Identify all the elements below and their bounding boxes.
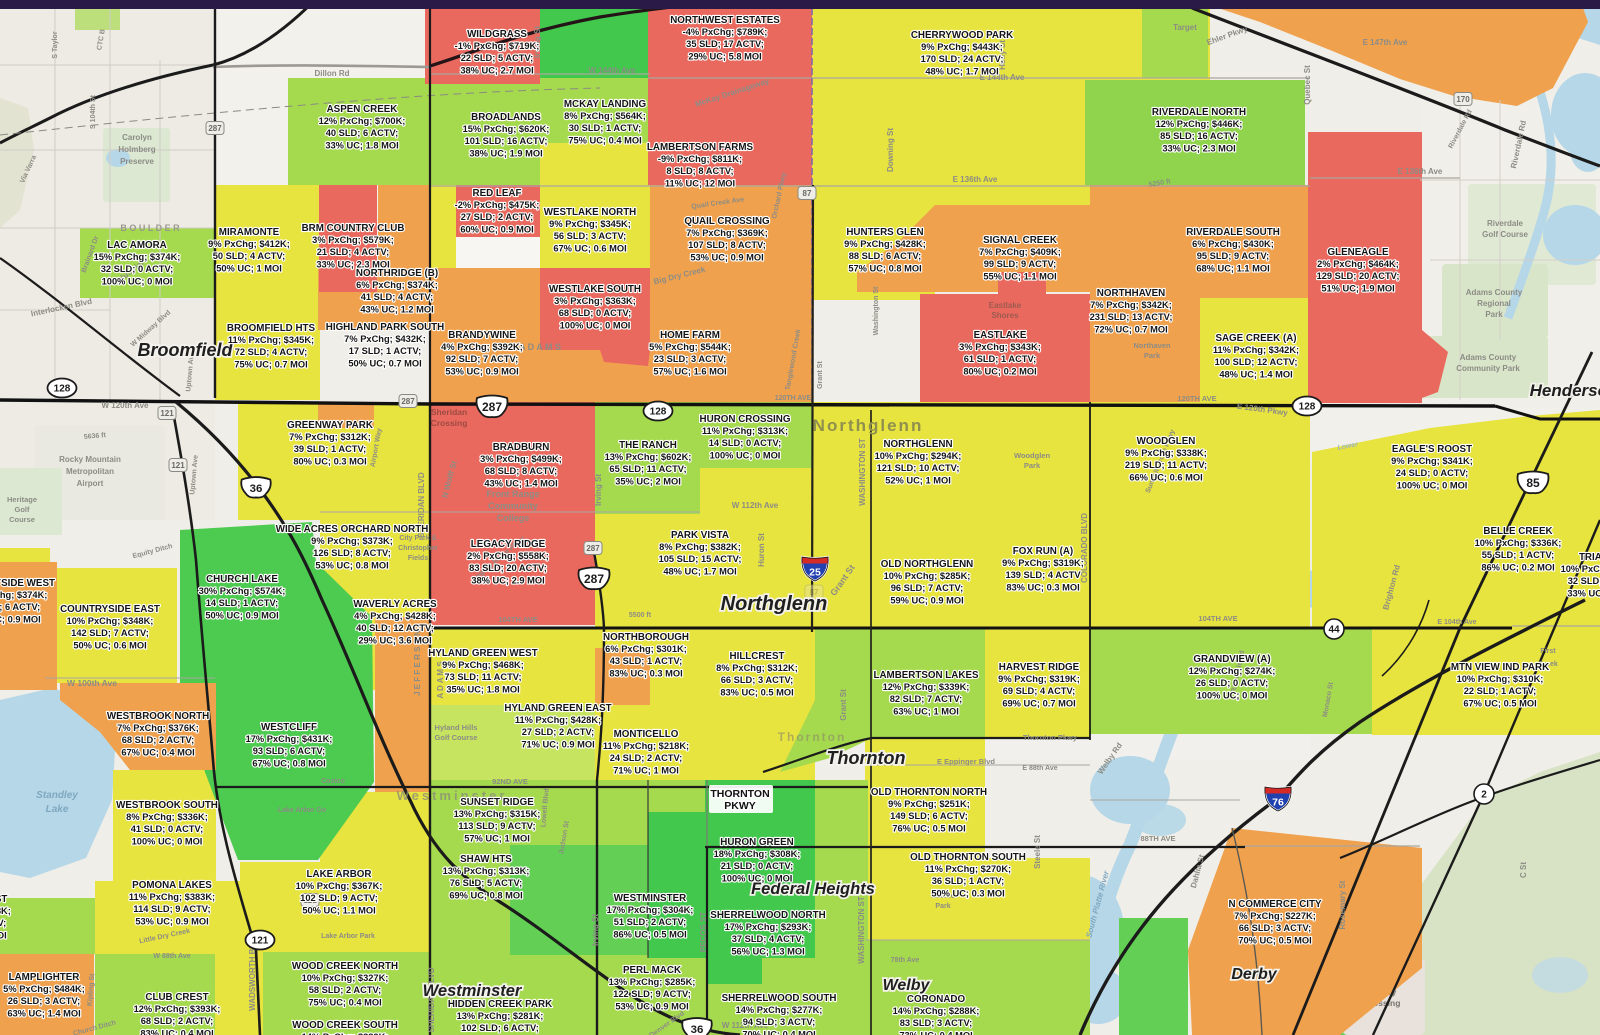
svg-text:City Park &: City Park &: [399, 535, 436, 542]
svg-text:86% UC; 0.5 MOI: 86% UC; 0.5 MOI: [613, 929, 686, 939]
svg-text:CHERRYWOOD PARK: CHERRYWOOD PARK: [911, 30, 1013, 41]
svg-text:Community: Community: [488, 501, 538, 511]
svg-text:Adams County: Adams County: [1460, 353, 1517, 362]
svg-text:10% PxChg; $348K;: 10% PxChg; $348K;: [67, 616, 154, 626]
svg-text:102 SLD; 6 ACTV;: 102 SLD; 6 ACTV;: [461, 1023, 539, 1033]
svg-text:7% PxChg; $376K;: 7% PxChg; $376K;: [117, 723, 199, 733]
svg-text:E 136th Ave: E 136th Ave: [953, 175, 998, 184]
svg-text:COLORADO BLVD: COLORADO BLVD: [1080, 513, 1089, 583]
svg-text:129 SLD; 20 ACTV;: 129 SLD; 20 ACTV;: [1317, 271, 1400, 281]
svg-text:67% UC; 0.4 MOI: 67% UC; 0.4 MOI: [121, 747, 194, 757]
svg-text:12% PxChg; $339K;: 12% PxChg; $339K;: [883, 682, 970, 692]
svg-text:75% UC; 0.4 MOI: 75% UC; 0.4 MOI: [308, 997, 381, 1007]
svg-text:RIVERDALE NORTH: RIVERDALE NORTH: [1152, 107, 1246, 118]
svg-text:ASPEN CREEK: ASPEN CREEK: [327, 104, 398, 115]
svg-text:Park: Park: [1024, 461, 1041, 470]
svg-text:B O U L D E R: B O U L D E R: [120, 223, 180, 233]
svg-text:94 SLD; 3 ACTV;: 94 SLD; 3 ACTV;: [743, 1017, 816, 1027]
svg-text:10% PxChg; $294K;: 10% PxChg; $294K;: [875, 451, 962, 461]
svg-text:11% PxChg; $345K;: 11% PxChg; $345K;: [228, 335, 314, 345]
svg-text:88TH AVE: 88TH AVE: [1140, 834, 1175, 843]
svg-text:63% UC; 1.4 MOI: 63% UC; 1.4 MOI: [7, 1008, 80, 1018]
svg-text:57% UC; 0.8 MOI: 57% UC; 0.8 MOI: [848, 263, 921, 273]
svg-text:50 SLD; 4 ACTV;: 50 SLD; 4 ACTV;: [213, 251, 286, 261]
svg-text:51% UC; 1.9 MOI: 51% UC; 1.9 MOI: [1321, 283, 1394, 293]
svg-text:44: 44: [1328, 625, 1340, 636]
svg-text:76 SLD; 5 ACTV;: 76 SLD; 5 ACTV;: [450, 878, 523, 888]
svg-text:67% UC; 0.5 MOI: 67% UC; 0.5 MOI: [1463, 698, 1536, 708]
svg-text:50% UC; 0.9 MOI: 50% UC; 0.9 MOI: [205, 610, 278, 620]
svg-text:BROOMFIELD HTS: BROOMFIELD HTS: [227, 323, 316, 334]
svg-text:OLD THORNTON NORTH: OLD THORNTON NORTH: [871, 787, 987, 798]
svg-text:40 SLD; 12 ACTV;: 40 SLD; 12 ACTV;: [356, 623, 434, 633]
svg-text:99 SLD; 9 ACTV;: 99 SLD; 9 ACTV;: [984, 259, 1057, 269]
svg-text:53% UC; 0.9 MOI: 53% UC; 0.9 MOI: [445, 366, 518, 376]
svg-text:85 SLD; 16 ACTV;: 85 SLD; 16 ACTV;: [1160, 131, 1238, 141]
svg-text:BRADBURN: BRADBURN: [493, 442, 550, 453]
svg-text:50% UC; 0.3 MOI: 50% UC; 0.3 MOI: [931, 888, 1004, 898]
svg-text:Grant St: Grant St: [817, 361, 824, 389]
svg-text:18% PxChg; $308K;: 18% PxChg; $308K;: [714, 849, 801, 859]
svg-text:PKWY: PKWY: [724, 800, 756, 812]
svg-text:170 SLD; 24 ACTV;: 170 SLD; 24 ACTV;: [921, 54, 1004, 64]
svg-text:WESTMINSTER: WESTMINSTER: [614, 893, 686, 904]
svg-text:36: 36: [691, 1024, 704, 1035]
svg-text:EASTLAKE: EASTLAKE: [974, 330, 1027, 341]
svg-text:11% PxChg; $270K;: 11% PxChg; $270K;: [925, 864, 1011, 874]
svg-text:7% PxChg; $409K;: 7% PxChg; $409K;: [979, 247, 1061, 257]
svg-text:Northaven: Northaven: [1133, 341, 1171, 350]
svg-text:53% UC; 0.9 MOI: 53% UC; 0.9 MOI: [615, 1001, 688, 1011]
svg-text:Thornton: Thornton: [778, 730, 847, 744]
svg-text:7% PxChg; $369K;: 7% PxChg; $369K;: [686, 228, 768, 238]
svg-text:66% UC; 0.6 MOI: 66% UC; 0.6 MOI: [1129, 472, 1202, 482]
svg-text:13% PxChg; $281K;: 13% PxChg; $281K;: [457, 1011, 544, 1021]
svg-text:Westminster: Westminster: [423, 982, 523, 1000]
svg-text:24 SLD; 2 ACTV;: 24 SLD; 2 ACTV;: [610, 753, 683, 763]
svg-text:8% PxChg; $312K;: 8% PxChg; $312K;: [716, 663, 798, 673]
svg-text:88 SLD; 6 ACTV;: 88 SLD; 6 ACTV;: [849, 251, 922, 261]
svg-text:COUNTRYSIDE WEST: COUNTRYSIDE WEST: [0, 578, 55, 589]
svg-text:58 SLD; 2 ACTV;: 58 SLD; 2 ACTV;: [309, 985, 382, 995]
svg-text:33% UC; 1.5 MOI: 33% UC; 1.5 MOI: [1567, 588, 1600, 598]
svg-text:College: College: [497, 513, 530, 523]
svg-text:63% UC; 1 MOI: 63% UC; 1 MOI: [893, 706, 959, 716]
svg-text:GRANDVIEW (A): GRANDVIEW (A): [1193, 654, 1270, 665]
svg-text:53% UC; 0.8 MOI: 53% UC; 0.8 MOI: [315, 560, 388, 570]
svg-text:100% UC; 0 MOI: 100% UC; 0 MOI: [132, 836, 203, 846]
svg-text:4% PxChg; $392K;: 4% PxChg; $392K;: [441, 342, 523, 352]
svg-text:FOX RUN (A): FOX RUN (A): [1013, 546, 1073, 557]
svg-text:85: 85: [1526, 476, 1540, 490]
svg-text:11% PxChg; $218K;: 11% PxChg; $218K;: [603, 741, 689, 751]
svg-text:68 SLD; 0 ACTV;: 68 SLD; 0 ACTV;: [559, 308, 632, 318]
svg-text:70% UC; 0.5 MOI: 70% UC; 0.5 MOI: [1238, 935, 1311, 945]
svg-text:105 SLD; 15 ACTV;: 105 SLD; 15 ACTV;: [659, 554, 742, 564]
svg-text:26 SLD; 3 ACTV;: 26 SLD; 3 ACTV;: [8, 996, 81, 1006]
svg-text:11% PxChg; $342K;: 11% PxChg; $342K;: [1213, 345, 1299, 355]
svg-text:40 SLD; 6 ACTV;: 40 SLD; 6 ACTV;: [326, 128, 399, 138]
svg-text:65 SLD; 11 ACTV;: 65 SLD; 11 ACTV;: [609, 464, 686, 474]
svg-text:25: 25: [809, 567, 821, 579]
svg-text:219 SLD; 11 ACTV;: 219 SLD; 11 ACTV;: [1125, 460, 1207, 470]
svg-text:THE RANCH: THE RANCH: [619, 440, 677, 451]
svg-text:12% PxChg; $393K;: 12% PxChg; $393K;: [134, 1004, 221, 1014]
svg-text:First: First: [1540, 648, 1556, 655]
svg-text:Northglenn: Northglenn: [813, 416, 924, 435]
svg-text:5% PxChg; $484K;: 5% PxChg; $484K;: [3, 984, 85, 994]
svg-text:142 SLD; 7 ACTV;: 142 SLD; 7 ACTV;: [71, 628, 149, 638]
svg-text:SHERRELWOOD SOUTH: SHERRELWOOD SOUTH: [722, 993, 837, 1004]
svg-text:MTN VIEW IND PARK: MTN VIEW IND PARK: [1451, 662, 1549, 673]
svg-text:11% PxChg; $313K;: 11% PxChg; $313K;: [702, 426, 788, 436]
svg-text:7% PxChg; $227K;: 7% PxChg; $227K;: [1234, 911, 1316, 921]
svg-text:18 SLD; 6 ACTV;: 18 SLD; 6 ACTV;: [0, 602, 40, 612]
svg-text:Irving St: Irving St: [594, 474, 603, 506]
svg-text:Northglenn: Northglenn: [721, 593, 828, 615]
svg-text:35% UC; 2 MOI: 35% UC; 2 MOI: [615, 476, 681, 486]
svg-text:9% PxChg; $341K;: 9% PxChg; $341K;: [1391, 456, 1473, 466]
svg-text:Welby: Welby: [883, 977, 931, 994]
svg-text:W 144th Ave: W 144th Ave: [589, 66, 637, 75]
svg-text:8% PxChg; $388K;: 8% PxChg; $388K;: [0, 906, 11, 916]
svg-text:7% PxChg; $342K;: 7% PxChg; $342K;: [1090, 300, 1172, 310]
svg-text:GREENWAY PARK: GREENWAY PARK: [287, 420, 373, 431]
svg-text:HURON GREEN: HURON GREEN: [720, 837, 793, 848]
svg-text:72 SLD; 4 ACTV;: 72 SLD; 4 ACTV;: [235, 347, 308, 357]
svg-text:S Taylor: S Taylor: [52, 31, 59, 58]
svg-text:Airport: Airport: [77, 479, 104, 488]
svg-text:9% PxChg; $338K;: 9% PxChg; $338K;: [1125, 448, 1207, 458]
svg-text:SUNSET RIDGE: SUNSET RIDGE: [460, 797, 534, 808]
svg-text:3% PxChg; $499K;: 3% PxChg; $499K;: [480, 454, 562, 464]
svg-text:149 SLD; 6 ACTV;: 149 SLD; 6 ACTV;: [890, 811, 968, 821]
svg-text:MCKAY LANDING: MCKAY LANDING: [564, 99, 647, 110]
svg-text:100% UC; 0 MOI: 100% UC; 0 MOI: [722, 873, 793, 883]
svg-text:9% PxChg; $468K;: 9% PxChg; $468K;: [442, 660, 524, 670]
svg-text:8 SLD; 8 ACTV;: 8 SLD; 8 ACTV;: [666, 166, 733, 176]
svg-text:Downing St: Downing St: [886, 128, 895, 172]
svg-text:78th Ave: 78th Ave: [891, 957, 920, 964]
svg-text:Metropolitan: Metropolitan: [66, 467, 114, 476]
svg-text:N COMMERCE CITY: N COMMERCE CITY: [1228, 899, 1322, 910]
svg-text:67% UC; 0.8 MOI: 67% UC; 0.8 MOI: [252, 758, 325, 768]
svg-text:37 SLD; 4 ACTV;: 37 SLD; 4 ACTV;: [732, 934, 805, 944]
svg-text:63% UC; 0.4 MOI: 63% UC; 0.4 MOI: [0, 930, 7, 940]
svg-text:Crossing: Crossing: [431, 418, 468, 428]
svg-text:6% PxChg; $430K;: 6% PxChg; $430K;: [1192, 239, 1274, 249]
svg-text:NORTHBOROUGH: NORTHBOROUGH: [603, 632, 689, 643]
svg-text:LAKE ARBOR: LAKE ARBOR: [307, 869, 372, 880]
svg-text:Park: Park: [1144, 351, 1161, 360]
svg-text:76% UC; 0.5 MOI: 76% UC; 0.5 MOI: [892, 823, 965, 833]
svg-text:10% PxChg; $285K;: 10% PxChg; $285K;: [884, 571, 971, 581]
svg-text:BROADLANDS: BROADLANDS: [471, 112, 541, 123]
svg-text:Riverdale: Riverdale: [1487, 219, 1524, 228]
svg-text:Golf: Golf: [15, 505, 30, 514]
svg-text:WESTCLIFF: WESTCLIFF: [261, 722, 317, 733]
svg-text:75% UC; 0.7 MOI: 75% UC; 0.7 MOI: [234, 359, 307, 369]
svg-text:75% UC; 0.4 MOI: 75% UC; 0.4 MOI: [568, 135, 641, 145]
svg-text:8% PxChg; $564K;: 8% PxChg; $564K;: [564, 111, 646, 121]
svg-text:29% UC; 3.6 MOI: 29% UC; 3.6 MOI: [358, 635, 431, 645]
svg-text:128: 128: [650, 407, 667, 418]
svg-text:SIGNAL CREEK: SIGNAL CREEK: [983, 235, 1057, 246]
svg-text:13% PxChg; $285K;: 13% PxChg; $285K;: [609, 977, 696, 987]
svg-text:287: 287: [401, 397, 415, 406]
svg-text:86% UC; 0.2 MOI: 86% UC; 0.2 MOI: [1481, 562, 1554, 572]
svg-text:EAGLE'S ROOST: EAGLE'S ROOST: [1392, 444, 1472, 455]
svg-text:Adams County: Adams County: [1466, 288, 1523, 297]
svg-text:43 SLD; 1 ACTV;: 43 SLD; 1 ACTV;: [610, 656, 683, 666]
svg-text:92 SLD; 7 ACTV;: 92 SLD; 7 ACTV;: [446, 354, 519, 364]
svg-text:BRM COUNTRY CLUB: BRM COUNTRY CLUB: [302, 223, 405, 234]
svg-text:70% UC; 0.4 MOI: 70% UC; 0.4 MOI: [742, 1029, 815, 1035]
svg-text:Park: Park: [1485, 310, 1503, 319]
svg-text:MONTICELLO: MONTICELLO: [614, 729, 679, 740]
svg-text:MIRAMONTE: MIRAMONTE: [219, 227, 280, 238]
svg-text:17% PxChg; $431K;: 17% PxChg; $431K;: [246, 734, 333, 744]
svg-text:Dillon Rd: Dillon Rd: [314, 69, 349, 78]
svg-text:BELLE CREEK: BELLE CREEK: [1483, 526, 1552, 537]
svg-text:6% PxChg; $301K;: 6% PxChg; $301K;: [605, 644, 687, 654]
svg-text:56 SLD; 3 ACTV;: 56 SLD; 3 ACTV;: [554, 231, 627, 241]
svg-text:Thornton: Thornton: [827, 748, 906, 768]
svg-text:43% UC; 1.4 MOI: 43% UC; 1.4 MOI: [484, 478, 557, 488]
svg-text:Course: Course: [9, 515, 35, 524]
svg-text:68% UC; 1.1 MOI: 68% UC; 1.1 MOI: [1196, 263, 1269, 273]
svg-text:61 SLD; 1 ACTV;: 61 SLD; 1 ACTV;: [964, 354, 1037, 364]
svg-text:15% PxChg; $620K;: 15% PxChg; $620K;: [463, 124, 550, 134]
svg-text:10% PxChg; $327K;: 10% PxChg; $327K;: [302, 973, 389, 983]
svg-text:Rocky Mountain: Rocky Mountain: [59, 455, 121, 464]
svg-text:50% UC; 0.6 MOI: 50% UC; 0.6 MOI: [73, 640, 146, 650]
svg-text:53% UC; 0.9 MOI: 53% UC; 0.9 MOI: [135, 916, 208, 926]
svg-text:Regional: Regional: [1477, 299, 1511, 308]
svg-text:12% PxChg; $274K;: 12% PxChg; $274K;: [1189, 666, 1276, 676]
svg-text:QUAIL CROSSING: QUAIL CROSSING: [684, 216, 770, 227]
svg-text:WESTLAKE NORTH: WESTLAKE NORTH: [544, 207, 637, 218]
svg-text:107 SLD; 8 ACTV;: 107 SLD; 8 ACTV;: [688, 240, 766, 250]
svg-text:52% UC; 1 MOI: 52% UC; 1 MOI: [885, 475, 951, 485]
svg-text:29% UC; 5.8 MOI: 29% UC; 5.8 MOI: [688, 51, 761, 61]
svg-text:83 SLD; 3 ACTV;: 83 SLD; 3 ACTV;: [900, 1018, 973, 1028]
svg-text:Huron St: Huron St: [757, 533, 766, 567]
svg-text:-4% PxChg; $789K;: -4% PxChg; $789K;: [683, 27, 768, 37]
svg-text:9% PxChg; $251K;: 9% PxChg; $251K;: [888, 799, 970, 809]
svg-text:68 SLD; 8 ACTV;: 68 SLD; 8 ACTV;: [485, 466, 558, 476]
svg-text:Golf Course: Golf Course: [435, 733, 478, 742]
svg-text:E 88th Ave: E 88th Ave: [1022, 765, 1057, 772]
svg-text:14 SLD; 1 ACTV;: 14 SLD; 1 ACTV;: [206, 598, 279, 608]
svg-text:100% UC; 0 MOI: 100% UC; 0 MOI: [1397, 480, 1468, 490]
svg-text:Steele St: Steele St: [1033, 835, 1042, 869]
svg-text:14 SLD; 0 ACTV;: 14 SLD; 0 ACTV;: [709, 438, 782, 448]
svg-text:9% PxChg; $319K;: 9% PxChg; $319K;: [998, 674, 1080, 684]
svg-text:Costco: Costco: [321, 778, 345, 785]
svg-text:23 SLD; 3 ACTV;: 23 SLD; 3 ACTV;: [654, 354, 727, 364]
svg-text:10% PxChg; $367K;: 10% PxChg; $367K;: [296, 881, 383, 891]
svg-text:15% PxChg; $374K;: 15% PxChg; $374K;: [0, 590, 47, 600]
svg-text:10% PxChg; $345K;: 10% PxChg; $345K;: [1561, 564, 1600, 574]
svg-text:73% UC; 0.4 MOI: 73% UC; 0.4 MOI: [899, 1030, 972, 1035]
svg-text:121: 121: [252, 936, 269, 947]
svg-text:HUNTERS GLEN: HUNTERS GLEN: [846, 227, 923, 238]
svg-text:E 136th Ave: E 136th Ave: [1398, 167, 1443, 176]
svg-text:GLENEAGLE: GLENEAGLE: [1328, 247, 1389, 258]
svg-text:HOME FARM: HOME FARM: [660, 330, 720, 341]
svg-text:10% PxChg; $310K;: 10% PxChg; $310K;: [1457, 674, 1544, 684]
svg-text:83% UC; 0.3 MOI: 83% UC; 0.3 MOI: [1006, 582, 1079, 592]
svg-text:COUNTRYSIDE EAST: COUNTRYSIDE EAST: [60, 604, 160, 615]
svg-text:NORTHRIDGE (B): NORTHRIDGE (B): [356, 268, 438, 279]
svg-text:9% PxChg; $443K;: 9% PxChg; $443K;: [921, 42, 1003, 52]
svg-text:101 SLD; 16 ACTV;: 101 SLD; 16 ACTV;: [465, 136, 548, 146]
svg-text:Community Park: Community Park: [1456, 364, 1520, 373]
svg-text:231 SLD; 13 ACTV;: 231 SLD; 13 ACTV;: [1090, 312, 1173, 322]
svg-text:26 SLD; 0 ACTV;: 26 SLD; 0 ACTV;: [1196, 678, 1269, 688]
svg-text:80% UC; 0.2 MOI: 80% UC; 0.2 MOI: [963, 366, 1036, 376]
svg-text:W 100th Ave: W 100th Ave: [67, 678, 117, 688]
svg-text:33% UC; 1.8 MOI: 33% UC; 1.8 MOI: [325, 140, 398, 150]
svg-text:Rosemary St: Rosemary St: [1338, 880, 1347, 929]
svg-text:Sheridan: Sheridan: [431, 407, 467, 417]
svg-text:14% PxChg; $288K;: 14% PxChg; $288K;: [893, 1006, 980, 1016]
svg-text:104TH AVE: 104TH AVE: [498, 615, 537, 624]
svg-text:13% PxChg; $313K;: 13% PxChg; $313K;: [443, 866, 530, 876]
svg-text:CORONADO: CORONADO: [907, 994, 966, 1005]
svg-text:LAC AMORA: LAC AMORA: [107, 240, 167, 251]
svg-text:9% PxChg; $319K;: 9% PxChg; $319K;: [1002, 558, 1084, 568]
svg-text:128: 128: [1299, 402, 1316, 413]
svg-text:Park: Park: [935, 903, 950, 910]
svg-text:36 SLD; 1 ACTV;: 36 SLD; 1 ACTV;: [932, 876, 1005, 886]
svg-text:SHERRELWOOD NORTH: SHERRELWOOD NORTH: [710, 910, 825, 921]
svg-text:83% UC; 0.5 MOI: 83% UC; 0.5 MOI: [720, 687, 793, 697]
svg-text:57% UC; 1.6 MOI: 57% UC; 1.6 MOI: [653, 366, 726, 376]
svg-text:HURON CROSSING: HURON CROSSING: [700, 414, 791, 425]
svg-text:Lake Arbor Go: Lake Arbor Go: [278, 807, 326, 814]
svg-text:68 SLD; 2 ACTV;: 68 SLD; 2 ACTV;: [122, 735, 195, 745]
svg-text:21 SLD; 0 ACTV;: 21 SLD; 0 ACTV;: [721, 861, 794, 871]
svg-text:C St: C St: [1519, 862, 1528, 878]
svg-text:56% UC; 1.3 MOI: 56% UC; 1.3 MOI: [731, 946, 804, 956]
svg-text:Washington St: Washington St: [873, 286, 880, 335]
svg-text:48% UC; 1.4 MOI: 48% UC; 1.4 MOI: [1219, 369, 1292, 379]
svg-text:E 147th Ave: E 147th Ave: [1363, 38, 1408, 47]
svg-text:67% UC; 0.6 MOI: 67% UC; 0.6 MOI: [553, 243, 626, 253]
svg-text:WESTLAKE SOUTH: WESTLAKE SOUTH: [549, 284, 641, 295]
svg-text:11% UC; 12 MOI: 11% UC; 12 MOI: [665, 178, 735, 188]
svg-text:95 SLD; 9 ACTV;: 95 SLD; 9 ACTV;: [1197, 251, 1270, 261]
svg-text:-1% PxChg; $719K;: -1% PxChg; $719K;: [455, 41, 540, 51]
svg-text:50% UC; 1 MOI: 50% UC; 1 MOI: [216, 263, 282, 273]
svg-text:36: 36: [250, 483, 263, 495]
svg-text:Carolyn: Carolyn: [122, 133, 152, 142]
svg-text:71% UC; 1 MOI: 71% UC; 1 MOI: [613, 765, 679, 775]
svg-text:POMONA WEST: POMONA WEST: [0, 894, 7, 905]
svg-text:Lake: Lake: [46, 804, 69, 815]
svg-text:6% PxChg; $374K;: 6% PxChg; $374K;: [356, 280, 438, 290]
svg-text:BRANDYWINE: BRANDYWINE: [448, 330, 516, 341]
svg-text:WIDE ACRES ORCHARD NORTH: WIDE ACRES ORCHARD NORTH: [276, 524, 429, 535]
svg-text:100% UC; 0 MOI: 100% UC; 0 MOI: [102, 276, 173, 286]
svg-text:Irving St: Irving St: [591, 914, 600, 946]
svg-text:Grant St: Grant St: [839, 689, 848, 721]
svg-text:38% UC; 2.7 MOI: 38% UC; 2.7 MOI: [460, 65, 533, 75]
svg-text:9% PxChg; $345K;: 9% PxChg; $345K;: [549, 219, 631, 229]
svg-text:21 SLD; 4 ACTV;: 21 SLD; 4 ACTV;: [317, 247, 390, 257]
svg-text:69% UC; 0.7 MOI: 69% UC; 0.7 MOI: [1002, 698, 1075, 708]
svg-text:Front Range: Front Range: [487, 489, 540, 499]
svg-text:17% PxChg; $293K;: 17% PxChg; $293K;: [725, 922, 812, 932]
svg-text:83% UC; 0.3 MOI: 83% UC; 0.3 MOI: [609, 668, 682, 678]
svg-text:NORTHGLENN: NORTHGLENN: [883, 439, 952, 450]
svg-text:120TH AVE: 120TH AVE: [1177, 394, 1216, 403]
svg-text:128: 128: [54, 384, 71, 395]
svg-text:WASHINGTON ST: WASHINGTON ST: [857, 896, 866, 964]
svg-text:102 SLD; 9 ACTV;: 102 SLD; 9 ACTV;: [300, 893, 378, 903]
svg-text:13% PxChg; $602K;: 13% PxChg; $602K;: [605, 452, 692, 462]
svg-text:96 SLD; 7 ACTV;: 96 SLD; 7 ACTV;: [891, 583, 964, 593]
svg-text:TRIANGLE: TRIANGLE: [1579, 552, 1600, 563]
svg-text:69 SLD; 4 ACTV;: 69 SLD; 4 ACTV;: [1003, 686, 1076, 696]
svg-text:126 SLD; 8 ACTV;: 126 SLD; 8 ACTV;: [313, 548, 391, 558]
svg-text:38% UC; 1.9 MOI: 38% UC; 1.9 MOI: [469, 148, 542, 158]
svg-text:93 SLD; 6 ACTV;: 93 SLD; 6 ACTV;: [253, 746, 326, 756]
svg-text:41 SLD; 4 ACTV;: 41 SLD; 4 ACTV;: [361, 292, 434, 302]
svg-text:E 104th Ave: E 104th Ave: [1437, 619, 1476, 626]
svg-text:RIVERDALE SOUTH: RIVERDALE SOUTH: [1186, 227, 1280, 238]
svg-text:17 SLD; 1 ACTV;: 17 SLD; 1 ACTV;: [349, 346, 422, 356]
svg-text:55 SLD; 1 ACTV;: 55 SLD; 1 ACTV;: [1482, 550, 1555, 560]
svg-text:NORTHWEST ESTATES: NORTHWEST ESTATES: [670, 15, 780, 26]
svg-text:55% UC; 1.1 MOI: 55% UC; 1.1 MOI: [983, 271, 1056, 281]
svg-text:43% UC; 1.2 MOI: 43% UC; 1.2 MOI: [360, 304, 433, 314]
svg-text:9% PxChg; $412K;: 9% PxChg; $412K;: [208, 239, 290, 249]
svg-text:WASHINGTON ST: WASHINGTON ST: [858, 438, 867, 506]
svg-text:SAGE CREEK (A): SAGE CREEK (A): [1215, 333, 1296, 344]
svg-text:22 SLD; 1 ACTV;: 22 SLD; 1 ACTV;: [1464, 686, 1537, 696]
svg-text:Shores: Shores: [991, 311, 1019, 320]
svg-text:WOOD CREEK SOUTH: WOOD CREEK SOUTH: [292, 1020, 398, 1031]
svg-text:71% UC; 0.9 MOI: 71% UC; 0.9 MOI: [521, 739, 594, 749]
svg-text:22 SLD; 5 ACTV;: 22 SLD; 5 ACTV;: [461, 53, 534, 63]
svg-text:39 SLD; 1 ACTV;: 39 SLD; 1 ACTV;: [294, 444, 367, 454]
svg-text:POMONA LAKES: POMONA LAKES: [132, 880, 212, 891]
svg-text:10% PxChg; $336K;: 10% PxChg; $336K;: [1475, 538, 1562, 548]
svg-text:9% PxChg; $373K;: 9% PxChg; $373K;: [311, 536, 393, 546]
svg-text:27 SLD; 2 ACTV;: 27 SLD; 2 ACTV;: [522, 727, 595, 737]
svg-text:32 SLD; 0 ACTV;: 32 SLD; 0 ACTV;: [101, 264, 174, 274]
svg-text:NORTHHAVEN: NORTHHAVEN: [1097, 288, 1165, 299]
svg-text:WILDGRASS: WILDGRASS: [467, 29, 527, 40]
svg-text:-9% PxChg; $811K;: -9% PxChg; $811K;: [658, 154, 742, 164]
svg-text:11% PxChg; $383K;: 11% PxChg; $383K;: [129, 892, 215, 902]
svg-text:76: 76: [1272, 797, 1284, 809]
svg-text:51 SLD; 2 ACTV;: 51 SLD; 2 ACTV;: [614, 917, 687, 927]
svg-text:OLD NORTHGLENN: OLD NORTHGLENN: [881, 559, 974, 570]
svg-text:92ND AVE: 92ND AVE: [492, 777, 528, 786]
svg-text:WOOD CREEK NORTH: WOOD CREEK NORTH: [292, 961, 398, 972]
svg-text:Derby: Derby: [1231, 966, 1277, 983]
svg-text:80% UC; 0.3 MOI: 80% UC; 0.3 MOI: [293, 456, 366, 466]
svg-text:Lake Arbor Park: Lake Arbor Park: [321, 933, 375, 940]
svg-text:THORNTON: THORNTON: [710, 788, 769, 800]
svg-text:121: 121: [160, 409, 174, 418]
svg-text:CLUB CREST: CLUB CREST: [145, 992, 208, 1003]
svg-text:38% UC; 2.9 MOI: 38% UC; 2.9 MOI: [471, 575, 544, 585]
